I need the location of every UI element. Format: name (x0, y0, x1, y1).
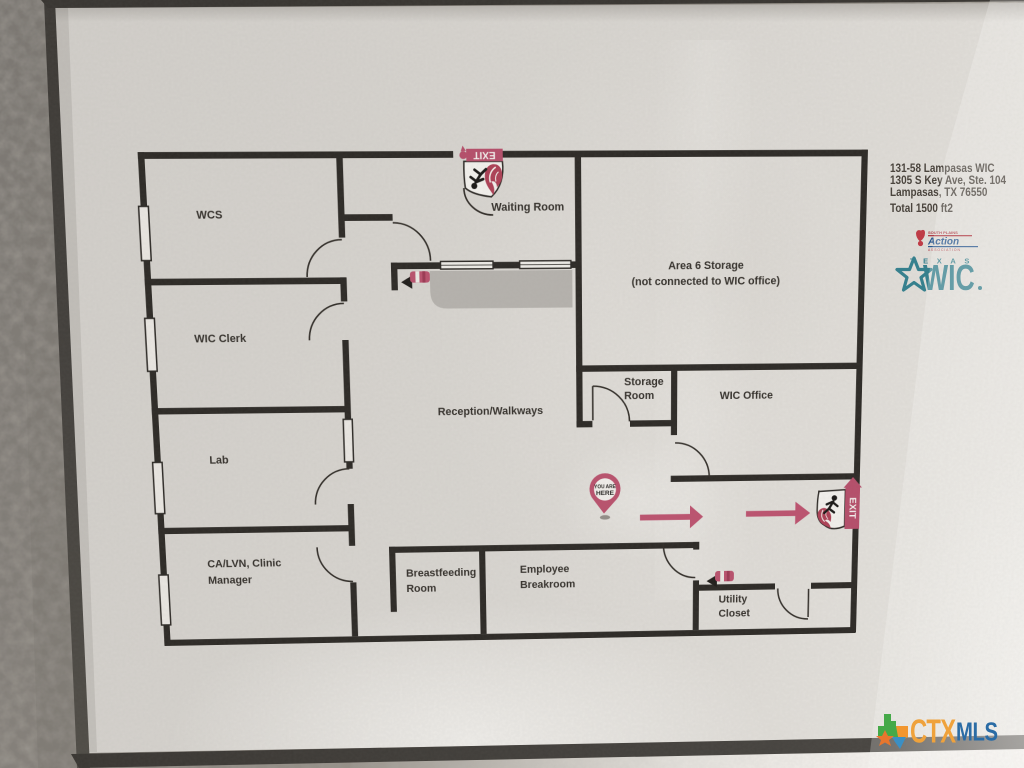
svg-text:WCS: WCS (196, 209, 223, 222)
svg-text:Action: Action (927, 237, 959, 248)
svg-text:WIC Clerk: WIC Clerk (194, 332, 247, 345)
svg-text:WIC: WIC (923, 257, 975, 298)
svg-text:Room: Room (624, 389, 654, 402)
svg-text:Manager: Manager (208, 574, 253, 587)
svg-text:CTX: CTX (910, 714, 956, 751)
svg-text:Area 6 Storage: Area 6 Storage (668, 259, 744, 272)
svg-text:CA/LVN, Clinic: CA/LVN, Clinic (207, 557, 282, 570)
svg-text:Closet: Closet (718, 607, 750, 619)
svg-text:Waiting Room: Waiting Room (491, 201, 564, 214)
svg-text:MLS: MLS (956, 717, 998, 746)
svg-text:EXIT: EXIT (847, 497, 858, 519)
svg-text:Lab: Lab (209, 454, 229, 466)
svg-text:Breastfeeding: Breastfeeding (406, 566, 476, 579)
svg-text:Storage: Storage (624, 375, 664, 388)
svg-text:Utility: Utility (719, 593, 748, 605)
svg-text:(not connected to WIC office): (not connected to WIC office) (631, 275, 780, 289)
svg-text:HERE: HERE (596, 489, 614, 497)
svg-text:Room: Room (406, 582, 436, 594)
svg-text:Breakroom: Breakroom (520, 578, 575, 591)
svg-text:SOUTH PLAINS: SOUTH PLAINS (928, 230, 958, 235)
svg-text:Employee: Employee (520, 563, 570, 576)
svg-text:WIC Office: WIC Office (720, 389, 774, 402)
svg-text:EXIT: EXIT (473, 149, 496, 161)
svg-text:Reception/Walkways: Reception/Walkways (438, 405, 544, 418)
